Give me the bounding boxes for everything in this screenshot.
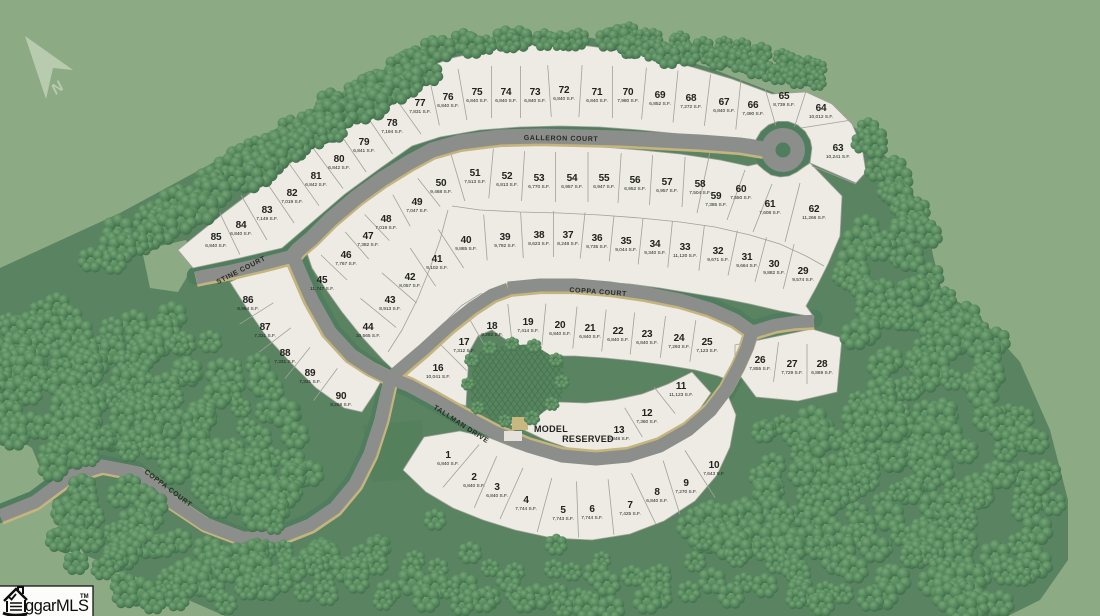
- svg-text:7,293 S.F.: 7,293 S.F.: [668, 344, 690, 350]
- svg-text:85: 85: [211, 232, 222, 243]
- svg-text:70: 70: [623, 87, 634, 98]
- svg-text:8,623 S.F.: 8,623 S.F.: [528, 241, 550, 247]
- svg-text:65: 65: [779, 91, 790, 102]
- svg-text:9,882 S.F.: 9,882 S.F.: [763, 270, 785, 276]
- svg-text:10,565 S.F.: 10,565 S.F.: [356, 333, 380, 339]
- svg-text:35: 35: [621, 236, 632, 247]
- svg-text:40: 40: [461, 235, 472, 246]
- svg-text:33: 33: [680, 242, 691, 253]
- svg-text:7,550 S.F.: 7,550 S.F.: [730, 195, 752, 201]
- svg-text:78: 78: [387, 118, 398, 129]
- svg-text:9,792 S.F.: 9,792 S.F.: [494, 243, 516, 249]
- svg-text:7,831 S.F.: 7,831 S.F.: [409, 109, 431, 115]
- svg-text:9,671 S.F.: 9,671 S.F.: [707, 257, 729, 263]
- svg-text:6,840 S.F.: 6,840 S.F.: [636, 340, 658, 346]
- svg-text:56: 56: [630, 175, 641, 186]
- svg-text:55: 55: [599, 173, 610, 184]
- svg-text:74: 74: [501, 87, 512, 98]
- svg-text:8,248 S.F.: 8,248 S.F.: [557, 241, 579, 247]
- svg-text:86: 86: [243, 295, 254, 306]
- svg-text:6,840 S.F.: 6,840 S.F.: [466, 98, 488, 104]
- svg-text:44: 44: [363, 322, 374, 333]
- svg-text:6,841 S.F.: 6,841 S.F.: [353, 148, 375, 154]
- svg-text:9,102 S.F.: 9,102 S.F.: [426, 265, 448, 271]
- svg-text:7,504 S.F.: 7,504 S.F.: [689, 190, 711, 196]
- svg-text:11,120 S.F.: 11,120 S.F.: [673, 253, 697, 259]
- svg-text:6,840 S.F.: 6,840 S.F.: [205, 243, 227, 249]
- svg-text:9,258 S.F.: 9,258 S.F.: [330, 402, 352, 408]
- svg-text:6,869 S.F.: 6,869 S.F.: [811, 370, 833, 376]
- svg-text:53: 53: [534, 173, 545, 184]
- svg-text:43: 43: [385, 295, 396, 306]
- svg-text:11,747 S.F.: 11,747 S.F.: [310, 286, 334, 292]
- svg-text:27: 27: [787, 359, 798, 370]
- svg-text:72: 72: [559, 85, 570, 96]
- svg-text:5: 5: [560, 505, 566, 516]
- svg-text:49: 49: [412, 197, 423, 208]
- svg-text:7,047 S.F.: 7,047 S.F.: [406, 208, 428, 214]
- svg-text:8: 8: [654, 487, 660, 498]
- svg-text:7,272 S.F.: 7,272 S.F.: [680, 104, 702, 110]
- svg-text:7,331 S.F.: 7,331 S.F.: [254, 333, 276, 339]
- svg-text:6,842 S.F.: 6,842 S.F.: [305, 182, 327, 188]
- svg-text:36: 36: [592, 233, 603, 244]
- svg-text:6,840 S.F.: 6,840 S.F.: [713, 108, 735, 114]
- svg-text:8,739 S.F.: 8,739 S.F.: [773, 102, 795, 108]
- svg-text:25: 25: [702, 337, 713, 348]
- svg-text:7,425 S.F.: 7,425 S.F.: [619, 511, 641, 517]
- svg-text:6,840 S.F.: 6,840 S.F.: [646, 498, 668, 504]
- svg-text:9: 9: [683, 478, 689, 489]
- svg-text:7,382 S.F.: 7,382 S.F.: [357, 242, 379, 248]
- svg-text:TM: TM: [80, 594, 89, 600]
- svg-text:57: 57: [662, 177, 673, 188]
- svg-text:19: 19: [523, 317, 534, 328]
- svg-text:6,840 S.F.: 6,840 S.F.: [486, 493, 508, 499]
- svg-text:7,608 S.F.: 7,608 S.F.: [759, 210, 781, 216]
- svg-text:7,385 S.F.: 7,385 S.F.: [705, 202, 727, 208]
- svg-text:30: 30: [769, 259, 780, 270]
- svg-text:38: 38: [534, 230, 545, 241]
- svg-text:6,840 S.F.: 6,840 S.F.: [549, 331, 571, 337]
- svg-text:47: 47: [363, 231, 374, 242]
- svg-text:34: 34: [650, 239, 661, 250]
- svg-text:7,744 S.F.: 7,744 S.F.: [515, 506, 537, 512]
- svg-text:48: 48: [381, 214, 392, 225]
- svg-text:6,840 S.F.: 6,840 S.F.: [437, 103, 459, 109]
- svg-text:87: 87: [260, 322, 271, 333]
- svg-text:84: 84: [236, 220, 247, 231]
- svg-text:6,840 S.F.: 6,840 S.F.: [437, 461, 459, 467]
- svg-text:9,468 S.F.: 9,468 S.F.: [430, 189, 452, 195]
- svg-text:10: 10: [709, 460, 720, 471]
- svg-text:16: 16: [433, 363, 444, 374]
- svg-text:7,019 S.F.: 7,019 S.F.: [375, 225, 397, 231]
- svg-text:22: 22: [613, 326, 624, 337]
- svg-text:9,885 S.F.: 9,885 S.F.: [455, 246, 477, 252]
- svg-text:67: 67: [719, 97, 730, 108]
- svg-text:17: 17: [459, 337, 470, 348]
- svg-text:54: 54: [567, 173, 578, 184]
- svg-text:88: 88: [280, 348, 291, 359]
- svg-text:6,957 S.F.: 6,957 S.F.: [656, 188, 678, 194]
- svg-text:7,513 S.F.: 7,513 S.F.: [464, 179, 486, 185]
- svg-text:GALLERON COURT: GALLERON COURT: [524, 135, 599, 143]
- svg-text:7,980 S.F.: 7,980 S.F.: [617, 98, 639, 104]
- svg-text:6,852 S.F.: 6,852 S.F.: [649, 101, 671, 107]
- svg-text:9,282 S.F.: 9,282 S.F.: [481, 332, 503, 338]
- svg-text:20: 20: [555, 320, 566, 331]
- svg-text:6,813 S.F.: 6,813 S.F.: [496, 182, 518, 188]
- svg-text:7,360 S.F.: 7,360 S.F.: [636, 419, 658, 425]
- svg-text:50: 50: [436, 178, 447, 189]
- svg-text:4: 4: [523, 495, 529, 506]
- svg-text:89: 89: [305, 368, 316, 379]
- svg-text:6,770 S.F.: 6,770 S.F.: [528, 184, 550, 190]
- svg-text:26: 26: [755, 355, 766, 366]
- svg-text:7,019 S.F.: 7,019 S.F.: [281, 199, 303, 205]
- svg-text:73: 73: [530, 87, 541, 98]
- svg-text:10,041 S.F.: 10,041 S.F.: [426, 374, 450, 380]
- svg-text:79: 79: [359, 137, 370, 148]
- svg-text:42: 42: [405, 272, 416, 283]
- svg-text:90: 90: [336, 391, 347, 402]
- svg-text:7,414 S.F.: 7,414 S.F.: [517, 328, 539, 334]
- svg-text:1: 1: [445, 450, 451, 461]
- svg-text:9,340 S.F.: 9,340 S.F.: [644, 250, 666, 256]
- svg-text:68: 68: [686, 93, 697, 104]
- svg-text:62: 62: [809, 204, 820, 215]
- svg-text:11,123 S.F.: 11,123 S.F.: [669, 392, 693, 398]
- svg-text:28: 28: [817, 359, 828, 370]
- svg-text:61: 61: [765, 199, 776, 210]
- svg-text:9,044 S.F.: 9,044 S.F.: [615, 247, 637, 253]
- svg-text:6,840 S.F.: 6,840 S.F.: [463, 483, 485, 489]
- svg-text:21: 21: [585, 323, 596, 334]
- svg-text:RESERVED: RESERVED: [562, 434, 614, 444]
- svg-text:66: 66: [748, 100, 759, 111]
- svg-text:41: 41: [432, 254, 443, 265]
- svg-text:7,331 S.F.: 7,331 S.F.: [299, 379, 321, 385]
- svg-text:7,331 S.F.: 7,331 S.F.: [274, 359, 296, 365]
- svg-text:23: 23: [642, 329, 653, 340]
- svg-text:6,840 S.F.: 6,840 S.F.: [553, 96, 575, 102]
- svg-text:7,855 S.F.: 7,855 S.F.: [749, 366, 771, 372]
- svg-text:51: 51: [470, 168, 481, 179]
- svg-text:29: 29: [798, 266, 809, 277]
- svg-text:7,490 S.F.: 7,490 S.F.: [742, 111, 764, 117]
- svg-text:11: 11: [676, 381, 687, 392]
- svg-text:6,840 S.F.: 6,840 S.F.: [586, 98, 608, 104]
- svg-text:6,957 S.F.: 6,957 S.F.: [561, 184, 583, 190]
- svg-text:6,840 S.F.: 6,840 S.F.: [524, 98, 546, 104]
- svg-text:75: 75: [472, 87, 483, 98]
- svg-text:2: 2: [471, 472, 477, 483]
- svg-text:7,123 S.F.: 7,123 S.F.: [696, 348, 718, 354]
- svg-text:7,743 S.F.: 7,743 S.F.: [552, 516, 574, 522]
- svg-text:10,012 S.F.: 10,012 S.F.: [809, 114, 833, 120]
- svg-text:52: 52: [502, 171, 513, 182]
- svg-text:7,149 S.F.: 7,149 S.F.: [256, 216, 278, 222]
- svg-text:58: 58: [695, 179, 706, 190]
- svg-text:9,574 S.F.: 9,574 S.F.: [792, 277, 814, 283]
- svg-text:10,241 S.F.: 10,241 S.F.: [826, 154, 850, 160]
- svg-text:6,840 S.F.: 6,840 S.F.: [230, 231, 252, 237]
- svg-text:80: 80: [334, 154, 345, 165]
- svg-text:6,952 S.F.: 6,952 S.F.: [624, 186, 646, 192]
- svg-text:MODEL: MODEL: [534, 424, 568, 434]
- svg-text:31: 31: [742, 252, 753, 263]
- svg-text:7,643 S.F.: 7,643 S.F.: [703, 471, 725, 477]
- svg-text:7,194 S.F.: 7,194 S.F.: [381, 129, 403, 135]
- svg-text:64: 64: [816, 103, 827, 114]
- svg-text:77: 77: [415, 98, 426, 109]
- svg-text:11,266 S.F.: 11,266 S.F.: [802, 215, 826, 221]
- svg-text:7,270 S.F.: 7,270 S.F.: [675, 489, 697, 495]
- svg-text:3: 3: [494, 482, 500, 493]
- svg-text:8,913 S.F.: 8,913 S.F.: [379, 306, 401, 312]
- svg-text:8,964 S.F.: 8,964 S.F.: [237, 306, 259, 312]
- svg-text:71: 71: [592, 87, 603, 98]
- svg-text:46: 46: [341, 250, 352, 261]
- svg-text:6,840 S.F.: 6,840 S.F.: [495, 98, 517, 104]
- svg-text:32: 32: [713, 246, 724, 257]
- svg-text:37: 37: [563, 230, 574, 241]
- svg-text:7,744 S.F.: 7,744 S.F.: [581, 515, 603, 521]
- svg-text:6,842 S.F.: 6,842 S.F.: [328, 165, 350, 171]
- svg-text:7,767 S.F.: 7,767 S.F.: [335, 261, 357, 267]
- svg-text:13: 13: [614, 425, 625, 436]
- svg-text:69: 69: [655, 90, 666, 101]
- svg-text:39: 39: [500, 232, 511, 243]
- svg-text:59: 59: [711, 191, 722, 202]
- svg-text:8,057 S.F.: 8,057 S.F.: [399, 283, 421, 289]
- svg-text:12: 12: [642, 408, 653, 419]
- svg-text:6,840 S.F.: 6,840 S.F.: [579, 334, 601, 340]
- svg-text:6,947 S.F.: 6,947 S.F.: [593, 184, 615, 190]
- svg-text:7,729 S.F.: 7,729 S.F.: [781, 370, 803, 376]
- svg-text:63: 63: [833, 143, 844, 154]
- svg-text:7: 7: [627, 500, 633, 511]
- svg-text:6: 6: [589, 504, 595, 515]
- svg-text:8,735 S.F.: 8,735 S.F.: [586, 244, 608, 250]
- svg-text:60: 60: [736, 184, 747, 195]
- svg-text:81: 81: [311, 171, 322, 182]
- svg-text:82: 82: [287, 188, 298, 199]
- svg-text:18: 18: [487, 321, 498, 332]
- svg-text:76: 76: [443, 92, 454, 103]
- svg-text:9,664 S.F.: 9,664 S.F.: [736, 263, 758, 269]
- svg-text:45: 45: [317, 275, 328, 286]
- svg-text:6,840 S.F.: 6,840 S.F.: [607, 337, 629, 343]
- svg-text:24: 24: [674, 333, 685, 344]
- svg-text:83: 83: [262, 205, 273, 216]
